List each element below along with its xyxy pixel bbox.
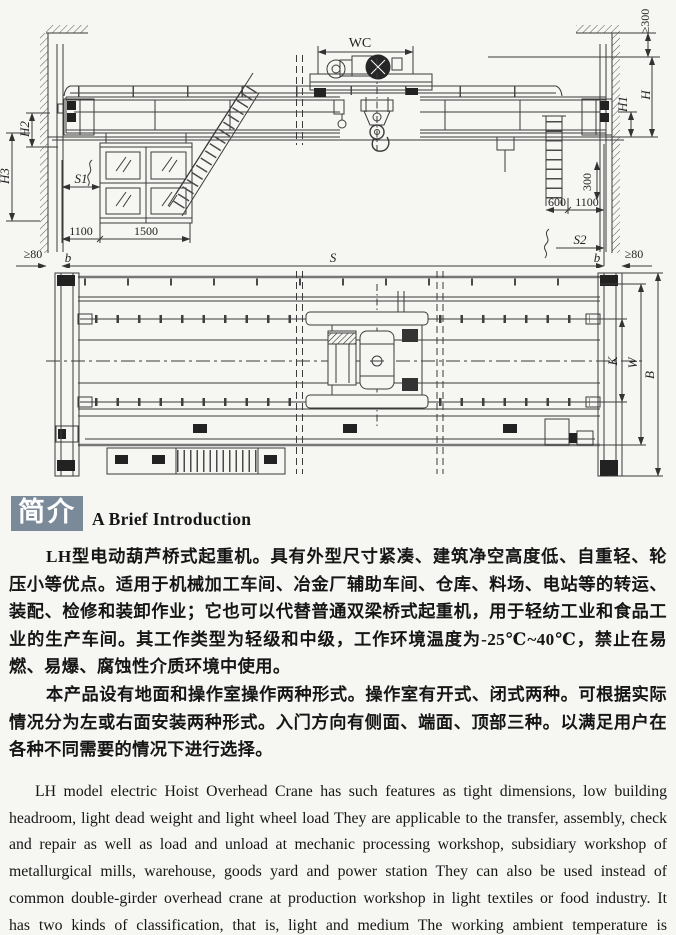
hoist-trolley	[310, 46, 432, 151]
plan-drawing: K W B	[0, 268, 676, 490]
dim-label-ge80-right: ≥80	[625, 247, 644, 261]
break-mark	[88, 160, 92, 186]
english-paragraph-1: LH model electric Hoist Overhead Crane h…	[9, 779, 667, 935]
section-heading-en: A Brief Introduction	[92, 509, 251, 531]
dim-label-h: H	[638, 90, 653, 101]
dim-label-s: S	[330, 250, 337, 265]
dim-label-h1: H1	[615, 96, 630, 113]
dim-label-600: 600	[548, 195, 566, 209]
dim-label-b-right: b	[594, 250, 601, 265]
dim-label-h2: H2	[17, 121, 32, 138]
dim-label-300: 300	[580, 173, 594, 191]
dim-label-ge80-left: ≥80	[24, 247, 43, 261]
dim-label-ge300: ≥300	[638, 9, 652, 34]
catalog-page: WC ≥300 H H1 H2 H3 S1 1100 1500 ≥80 b S …	[0, 0, 676, 935]
chinese-paragraph-2: 本产品设有地面和操作室操作两种形式。操作室有开式、闭式两种。可根据实际情况分为左…	[9, 681, 667, 764]
stairway	[168, 73, 259, 216]
dim-label-w: W	[625, 356, 640, 368]
dim-label-wc: WC	[349, 36, 372, 51]
trolley-plan	[306, 284, 428, 428]
dim-label-b: B	[642, 371, 657, 379]
dim-label-s2: S2	[574, 232, 588, 247]
break-mark	[544, 229, 549, 258]
chinese-paragraph-1: LH型电动葫芦桥式起重机。具有外型尺寸紧凑、建筑净空高度低、自重轻、轮压小等优点…	[9, 543, 667, 681]
driver-cabin	[88, 133, 192, 223]
elevation-drawing: WC ≥300 H H1 H2 H3 S1 1100 1500 ≥80 b S …	[0, 0, 676, 268]
section-heading-zh: 简介	[11, 496, 83, 531]
dim-label-k: K	[605, 355, 620, 366]
cabin-platform-plan	[107, 448, 285, 474]
introduction-section: 简介 A Brief Introduction LH型电动葫芦桥式起重机。具有外…	[0, 492, 676, 935]
dim-label-b-left: b	[65, 250, 72, 265]
end-carriage-left	[55, 273, 79, 476]
end-carriage-right	[598, 273, 622, 476]
dim-label-s1: S1	[75, 171, 88, 186]
dim-label-1500: 1500	[134, 224, 158, 238]
dim-label-1100-left: 1100	[69, 224, 93, 238]
section-heading: 简介 A Brief Introduction	[11, 496, 667, 531]
dim-label-h3: H3	[0, 168, 12, 185]
dim-label-1100-right: 1100	[575, 195, 599, 209]
left-wall-hatching	[40, 25, 88, 253]
